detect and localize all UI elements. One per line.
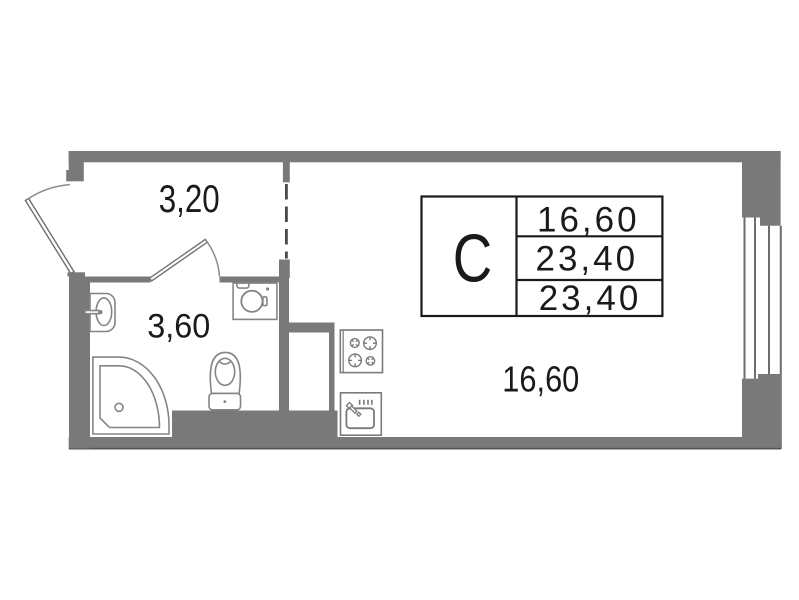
svg-text:3,20: 3,20 [159, 178, 220, 221]
svg-text:23,40: 23,40 [539, 279, 642, 318]
svg-text:23,40: 23,40 [536, 240, 639, 279]
svg-text:3,60: 3,60 [147, 308, 210, 346]
svg-text:16,60: 16,60 [537, 201, 640, 240]
svg-text:16,60: 16,60 [502, 359, 579, 400]
svg-text:С: С [453, 221, 493, 297]
